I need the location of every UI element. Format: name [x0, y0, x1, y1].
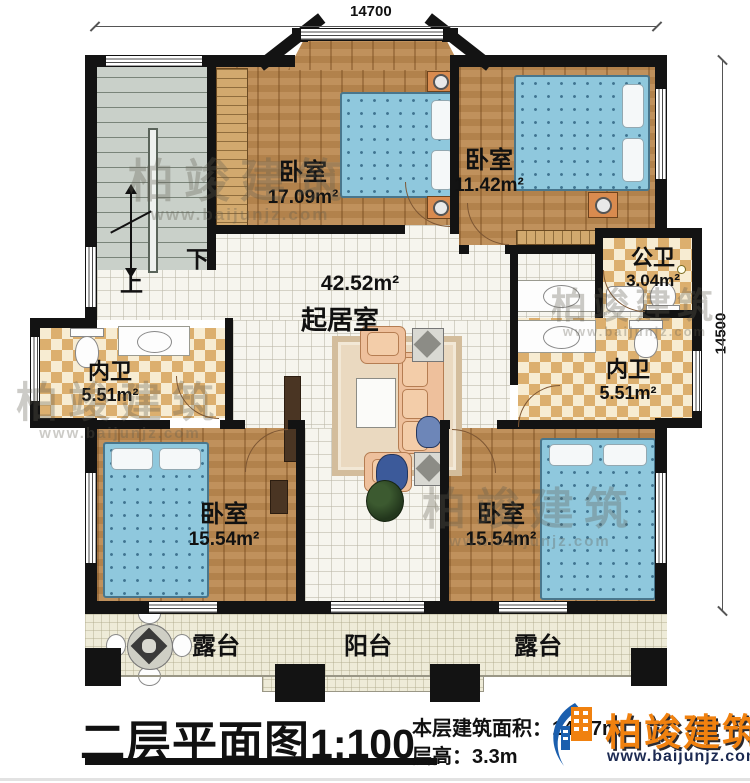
- wall: [450, 55, 459, 234]
- terrace-table-center: [142, 639, 156, 653]
- dimension-right: 14500: [712, 313, 729, 355]
- footer-divider: [0, 778, 750, 781]
- pillow: [603, 444, 647, 466]
- wall: [85, 420, 170, 429]
- label-terrace-left: 露台: [192, 634, 240, 661]
- room-area: 42.52m²: [321, 272, 399, 296]
- height-line: 层高：3.3m: [412, 740, 518, 769]
- room-area: 17.09m²: [268, 187, 339, 208]
- person-figure: [416, 416, 442, 448]
- wardrobe-bedroom-tl: [216, 68, 248, 226]
- wall: [215, 225, 405, 234]
- label-ensuite-left: 内卫 5.51m²: [81, 360, 138, 405]
- stair-label-down: 下: [186, 240, 209, 274]
- column: [631, 648, 667, 686]
- room-name: 内卫: [599, 358, 656, 383]
- label-ensuite-right: 内卫 5.51m²: [599, 358, 656, 403]
- room-name: 卧室: [466, 502, 537, 529]
- window: [655, 88, 667, 180]
- room-name: 公卫: [626, 246, 680, 271]
- sink-ensuite-left: [137, 331, 172, 353]
- height-value: 3.3m: [472, 746, 518, 768]
- label-bedroom-bl: 卧室 15.54m²: [189, 502, 260, 550]
- wall: [225, 318, 233, 420]
- room-area: 5.51m²: [81, 385, 138, 405]
- wall: [296, 420, 305, 601]
- plant: [366, 480, 404, 522]
- stair-arrow-head-up: [125, 184, 137, 194]
- pillow: [622, 138, 644, 182]
- room-area: 15.54m²: [189, 529, 260, 550]
- room-name: 卧室: [268, 160, 339, 187]
- stair-arrow-line: [130, 190, 132, 272]
- window: [85, 246, 97, 308]
- label-bedroom-tr: 卧室 11.42m²: [454, 148, 524, 196]
- porch-edge-line: [120, 675, 635, 677]
- room-area: 5.51m²: [599, 383, 656, 403]
- pillow: [159, 448, 201, 470]
- sliding-door-balcony: [330, 601, 425, 614]
- wall: [510, 253, 518, 385]
- window: [655, 472, 667, 564]
- dimension-line-top: [95, 26, 657, 27]
- window: [498, 601, 568, 614]
- brand-logo: 柏竣建筑 www.baijunjz.com: [545, 698, 750, 776]
- column: [275, 664, 325, 702]
- pillow: [549, 444, 593, 466]
- wall: [220, 420, 245, 429]
- wall: [440, 420, 449, 601]
- brand-logo-icon: [545, 700, 603, 775]
- stair-label-up: 上: [120, 264, 143, 298]
- wall: [207, 55, 216, 270]
- room-area: 11.42m²: [454, 175, 524, 196]
- window: [85, 472, 97, 564]
- stair-rail: [148, 128, 158, 273]
- window: [105, 55, 203, 67]
- room-name: 起居室: [301, 306, 379, 335]
- room-name: 内卫: [81, 360, 138, 385]
- coffee-table: [356, 378, 396, 428]
- wall: [30, 318, 97, 328]
- wall: [595, 238, 603, 318]
- dimension-top: 14700: [350, 3, 392, 20]
- label-living-area: 42.52m²: [321, 272, 399, 296]
- terrace-chair: [172, 634, 192, 657]
- room-name: 卧室: [454, 148, 524, 175]
- wall: [459, 245, 469, 254]
- wall: [505, 245, 603, 254]
- room-area: 3.04m²: [626, 271, 680, 290]
- title-underline: [85, 758, 437, 765]
- toilet-tank: [629, 320, 663, 329]
- label-living-name: 起居室: [301, 306, 379, 335]
- room-name: 露台: [514, 634, 562, 661]
- bed-bedroom-tr: [514, 75, 650, 191]
- floor-plan-page: 卧室 17.09m² 卧室 11.42m² 公卫 3.04m² 42.52m² …: [0, 0, 750, 783]
- toilet-ensuite-right: [634, 328, 658, 358]
- brand-site: www.baijunjz.com: [607, 748, 750, 766]
- window: [692, 350, 702, 412]
- tv-bedroom-bl: [270, 480, 288, 514]
- window: [148, 601, 218, 614]
- wall: [643, 310, 702, 318]
- pillow: [111, 448, 153, 470]
- label-public-bath: 公卫 3.04m²: [626, 246, 680, 290]
- room-name: 卧室: [189, 502, 260, 529]
- closet-bedroom-tr: [516, 230, 600, 245]
- room-area: 15.54m²: [466, 529, 537, 550]
- pillow: [622, 84, 644, 128]
- wall: [442, 28, 458, 42]
- bed-bedroom-br: [540, 438, 656, 600]
- column: [430, 664, 480, 702]
- window-bay: [300, 28, 444, 41]
- window: [30, 336, 40, 402]
- nightstand: [588, 192, 618, 218]
- end-table: [412, 328, 444, 362]
- room-name: 露台: [192, 634, 240, 661]
- room-name: 阳台: [344, 634, 392, 661]
- label-balcony: 阳台: [344, 634, 392, 661]
- label-bedroom-tl: 卧室 17.09m²: [268, 160, 339, 208]
- label-terrace-right: 露台: [514, 634, 562, 661]
- area-label: 本层建筑面积：: [412, 718, 552, 740]
- label-bedroom-br: 卧室 15.54m²: [466, 502, 537, 550]
- sink-ensuite-right: [543, 326, 580, 349]
- sink-hall: [543, 285, 580, 308]
- column: [85, 648, 121, 686]
- floor-bay: [288, 40, 462, 70]
- height-label: 层高：: [412, 746, 472, 768]
- dimension-line-right: [722, 60, 723, 612]
- wall: [595, 228, 702, 238]
